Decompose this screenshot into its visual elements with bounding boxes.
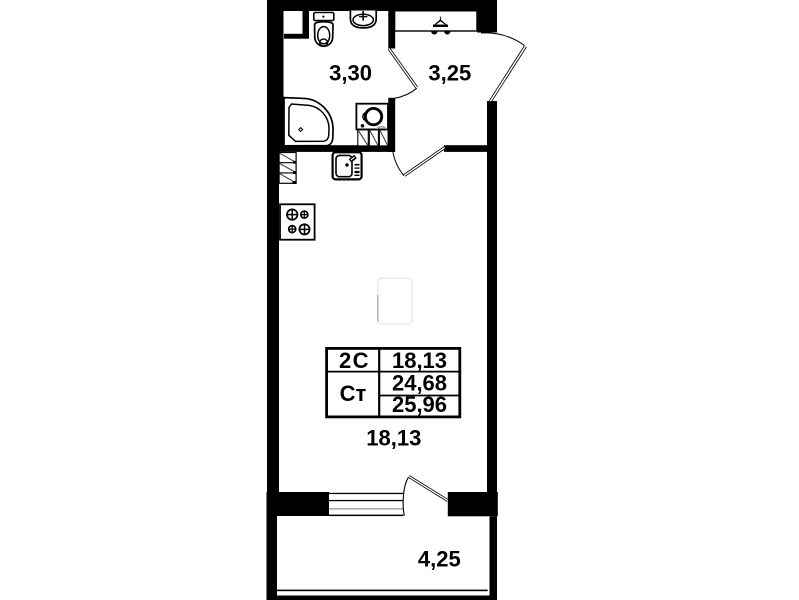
- svg-text:18,13: 18,13: [392, 348, 447, 373]
- svg-text:2C: 2C: [339, 348, 370, 373]
- svg-text:25,96: 25,96: [392, 392, 447, 417]
- svg-text:3,25: 3,25: [428, 61, 471, 86]
- svg-text:Ст: Ст: [340, 381, 367, 406]
- svg-text:18,13: 18,13: [366, 426, 421, 451]
- svg-text:4,25: 4,25: [418, 547, 461, 572]
- svg-text:3,30: 3,30: [329, 61, 372, 86]
